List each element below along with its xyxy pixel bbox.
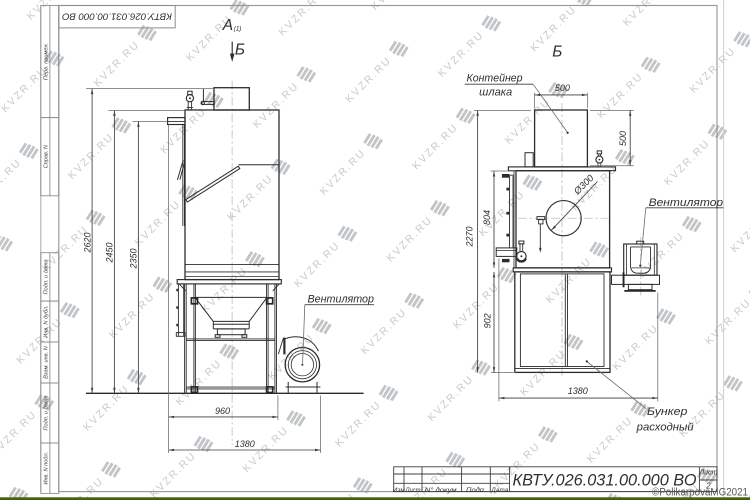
svg-text:расходный: расходный [636,421,694,433]
svg-text:Бункер: Бункер [647,406,688,418]
svg-text:Б: Б [552,44,562,61]
svg-text:Подп. и дата: Подп. и дата [44,395,50,430]
svg-text:©PolikarpovaMG2021: ©PolikarpovaMG2021 [652,487,748,499]
svg-text:804: 804 [482,210,492,225]
svg-text:Лист: Лист [405,487,421,494]
svg-text:Контейнер: Контейнер [467,73,523,85]
svg-text:2620: 2620 [82,232,92,253]
svg-text:Взам. инв. N: Взам. инв. N [44,345,50,379]
svg-text:КВТУ.026.031.00.000 ВО: КВТУ.026.031.00.000 ВО [61,11,172,22]
svg-text:2450: 2450 [105,242,115,263]
svg-text:Изм: Изм [393,487,405,494]
svg-text:Инв. N подл.: Инв. N подл. [44,452,50,485]
svg-text:902: 902 [482,313,492,328]
svg-text:N° докум.: N° докум. [425,486,459,494]
svg-text:Лист: Лист [698,470,717,477]
svg-text:Вентилятор: Вентилятор [308,293,375,305]
svg-text:А: А [222,17,233,34]
svg-text:Справ. N: Справ. N [44,144,50,168]
svg-text:Инв. N дубл.: Инв. N дубл. [44,305,50,337]
svg-text:500: 500 [618,131,628,146]
svg-text:500: 500 [555,83,570,93]
svg-text:1380: 1380 [235,439,255,449]
svg-text:2270: 2270 [464,226,474,247]
svg-text:1380: 1380 [568,386,588,396]
svg-text:2350: 2350 [129,248,139,269]
svg-text:Перв. примен.: Перв. примен. [44,43,50,80]
svg-text:Подп. и дата: Подп. и дата [44,259,50,294]
svg-text:(1): (1) [234,25,242,32]
svg-text:шлака: шлака [479,86,512,98]
svg-text:Б: Б [235,42,245,59]
svg-text:Подп.: Подп. [466,486,486,494]
svg-text:960: 960 [215,406,230,416]
svg-text:Дата: Дата [490,487,508,494]
